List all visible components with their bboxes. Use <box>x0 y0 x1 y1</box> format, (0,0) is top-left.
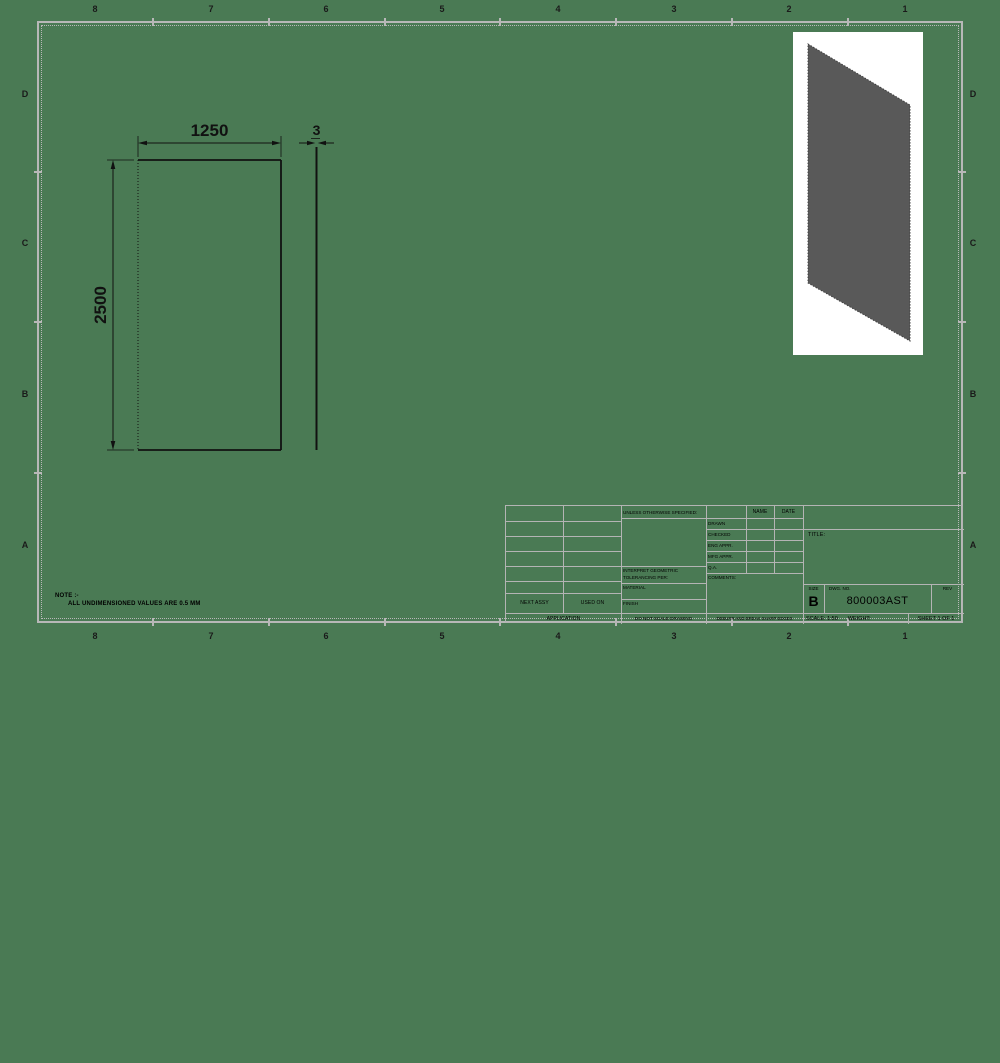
zone-tick <box>958 321 966 323</box>
dim-3: 3 <box>299 122 334 145</box>
do-not-scale-drawing-label: DO NOT SCALE DRAWING <box>621 613 706 624</box>
zone-label-right-D: D <box>966 88 980 100</box>
scale-weight-row: SCALE: 1:50 WEIGHT: <box>806 613 908 624</box>
sheet-text: SHEET 1 OF 1 <box>908 613 964 624</box>
zone-label-top-6: 6 <box>319 3 333 15</box>
unless-otherwise-specified-label: UNLESS OTHERWISE SPECIFIED: <box>621 506 706 518</box>
rev-label: REV <box>931 585 964 592</box>
zone-label-top-7: 7 <box>204 3 218 15</box>
next-assy-label: NEXT ASSY <box>506 593 563 613</box>
iso-view-card <box>793 32 923 355</box>
deburr-label: DEBURR AND BREAK SHARP EDGES <box>706 613 803 624</box>
zone-label-top-8: 8 <box>88 3 102 15</box>
application-label: APPLICATION <box>506 613 621 624</box>
zone-tick <box>958 171 966 173</box>
checked-label: CHECKED <box>706 529 746 540</box>
zone-tick <box>384 18 386 26</box>
drawing-views: 1250 2500 3 <box>85 95 355 475</box>
zone-label-bottom-3: 3 <box>667 630 681 642</box>
zone-label-bottom-7: 7 <box>204 630 218 642</box>
qa-label: Q.A. <box>706 562 746 573</box>
eng-appr-label: ENG APPR. <box>706 540 746 551</box>
zone-tick <box>152 618 154 626</box>
scale-text: SCALE: 1:50 <box>806 616 838 622</box>
dwg-no-value: 800003AST <box>824 590 931 612</box>
zone-label-right-A: A <box>966 539 980 551</box>
zone-label-bottom-2: 2 <box>782 630 796 642</box>
zone-tick <box>499 618 501 626</box>
zone-tick <box>958 472 966 474</box>
zone-tick <box>847 18 849 26</box>
mfg-appr-label: MFG APPR. <box>706 551 746 562</box>
name-header: NAME <box>746 506 774 518</box>
zone-tick <box>731 18 733 26</box>
iso-plate <box>808 44 910 341</box>
size-value: B <box>803 590 824 612</box>
note-line-1: NOTE :- <box>55 593 79 599</box>
zone-label-top-1: 1 <box>898 3 912 15</box>
zone-label-left-B: B <box>18 388 32 400</box>
zone-label-right-B: B <box>966 388 980 400</box>
title-label: TITLE: <box>806 531 866 539</box>
zone-label-left-C: C <box>18 237 32 249</box>
interpret-geometric-label: INTERPRET GEOMETRIC <box>621 567 706 574</box>
tolerancing-per-label: TOLERANCING PER: <box>621 574 706 581</box>
front-view-rect <box>138 160 281 450</box>
dim-1250-text: 1250 <box>191 121 229 140</box>
zone-label-right-C: C <box>966 237 980 249</box>
zone-tick <box>34 321 42 323</box>
zone-label-top-5: 5 <box>435 3 449 15</box>
zone-tick <box>152 18 154 26</box>
note-line-2: ALL UNDIMENSIONED VALUES ARE 0.5 MM <box>68 601 201 607</box>
dim-2500: 2500 <box>91 160 134 450</box>
zone-label-bottom-1: 1 <box>898 630 912 642</box>
dim-2500-text: 2500 <box>91 286 110 324</box>
zone-tick <box>34 472 42 474</box>
iso-view <box>793 32 923 355</box>
zone-label-bottom-5: 5 <box>435 630 449 642</box>
material-label: MATERIAL <box>621 584 706 592</box>
weight-text: WEIGHT: <box>848 616 871 622</box>
dim-3-text: 3 <box>313 122 321 138</box>
zone-label-bottom-8: 8 <box>88 630 102 642</box>
drawn-label: DRAWN <box>706 518 746 529</box>
zone-tick <box>34 171 42 173</box>
zone-label-bottom-6: 6 <box>319 630 333 642</box>
zone-tick <box>384 618 386 626</box>
zone-label-left-D: D <box>18 88 32 100</box>
finish-label: FINISH <box>621 600 706 608</box>
zone-tick <box>615 18 617 26</box>
dim-1250: 1250 <box>138 121 281 157</box>
zone-label-top-2: 2 <box>782 3 796 15</box>
date-header: DATE <box>774 506 803 518</box>
zone-label-left-A: A <box>18 539 32 551</box>
zone-tick <box>499 18 501 26</box>
title-block: NEXT ASSY USED ON APPLICATION UNLESS OTH… <box>505 505 963 623</box>
zone-label-top-3: 3 <box>667 3 681 15</box>
used-on-label: USED ON <box>564 593 621 613</box>
zone-tick <box>268 618 270 626</box>
comments-label: COMMENTS: <box>706 574 756 582</box>
zone-label-bottom-4: 4 <box>551 630 565 642</box>
zone-tick <box>268 18 270 26</box>
zone-label-top-4: 4 <box>551 3 565 15</box>
